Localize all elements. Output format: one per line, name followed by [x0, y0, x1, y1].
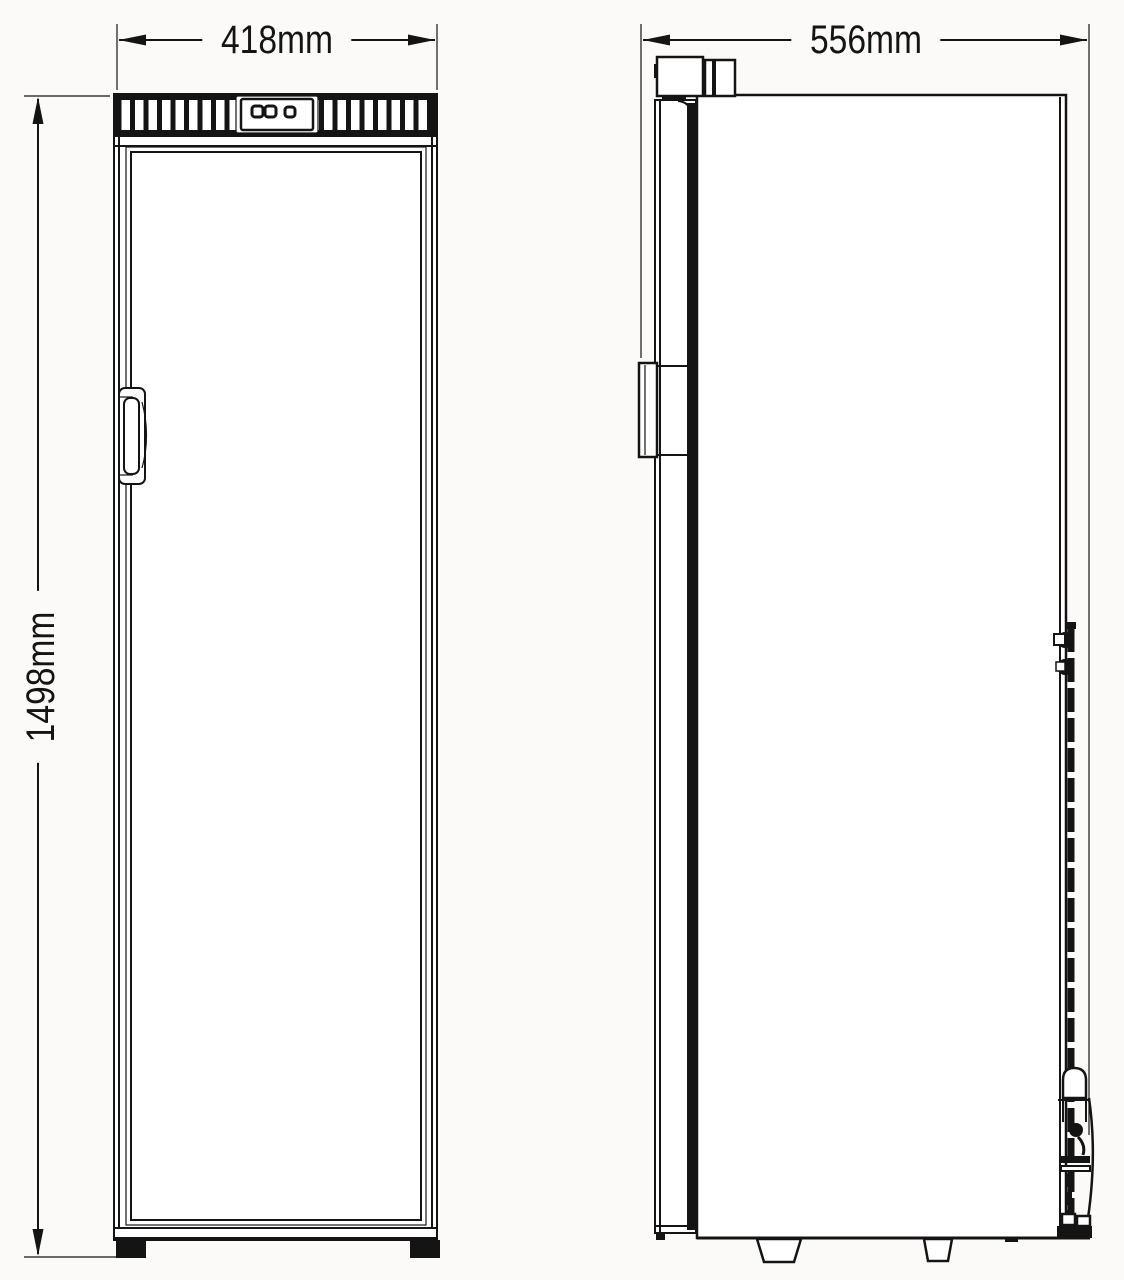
depth-dimension-value: 556mm: [810, 20, 922, 60]
arrow-left-icon: [119, 35, 146, 46]
front-left-foot: [116, 1240, 146, 1258]
depth-dimension-label: 556mm: [791, 20, 940, 60]
front-view: [24, 24, 440, 1258]
side-door: [655, 100, 696, 1240]
side-front-foot: [757, 1239, 801, 1262]
arrow-down-icon: [33, 1229, 44, 1256]
technical-drawing: [0, 0, 1124, 1280]
width-dimension-label: 418mm: [202, 20, 351, 60]
front-cabinet: [114, 94, 440, 1258]
control-panel: [236, 96, 318, 133]
arrow-left-icon: [643, 35, 670, 46]
arrow-right-icon: [408, 35, 435, 46]
arrow-right-icon: [1060, 35, 1087, 46]
height-dimension-label: 1498mm: [21, 591, 61, 763]
front-door-handle: [119, 388, 147, 484]
width-dimension-value: 418mm: [221, 20, 333, 60]
front-right-foot: [410, 1240, 440, 1258]
height-dimension-value: 1498mm: [21, 612, 61, 743]
dimension-diagram: 418mm 556mm 1498mm: [0, 0, 1124, 1280]
side-view: [639, 24, 1093, 1262]
side-top-hinge: [654, 57, 735, 102]
side-cabinet-body: [697, 95, 1090, 1238]
bottom-nub: [1005, 1238, 1018, 1242]
arrow-up-icon: [33, 97, 44, 124]
side-rear-foot: [924, 1239, 952, 1261]
control-buttons: [252, 106, 295, 117]
